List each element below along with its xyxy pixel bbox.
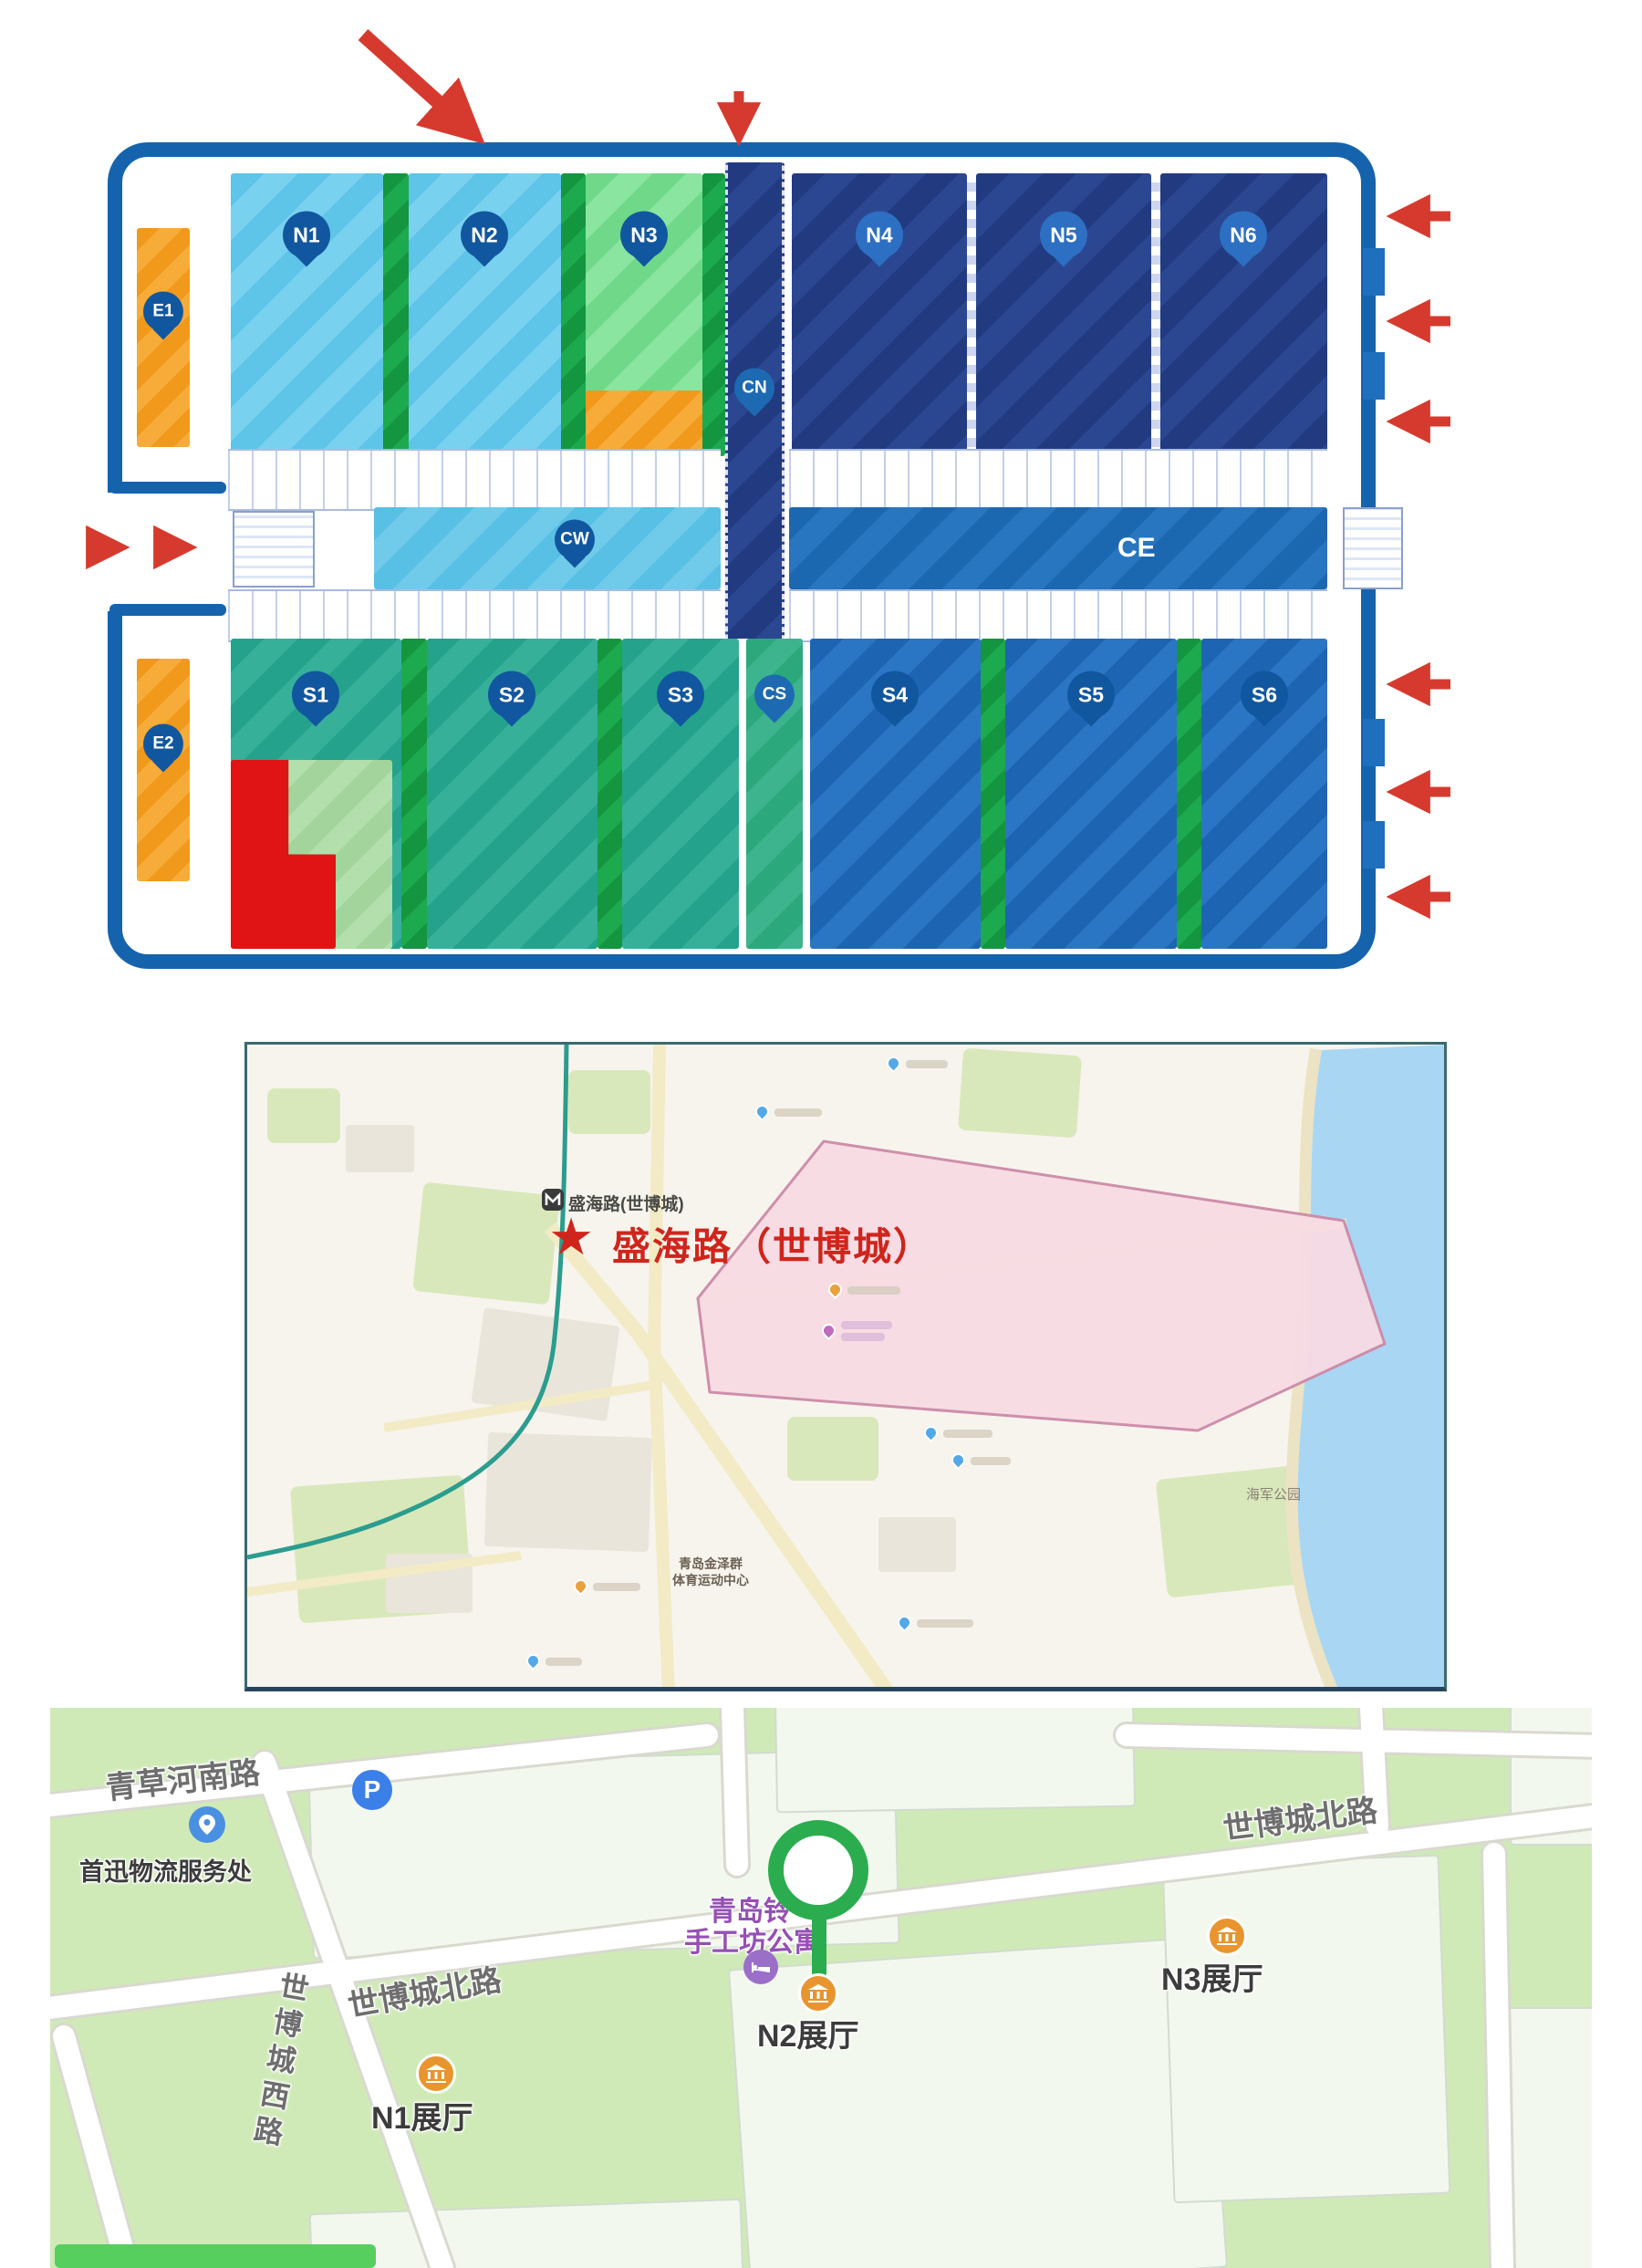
poi-logistics-label: 首迅物流服务处 <box>79 1852 252 1888</box>
road-stub <box>733 1708 737 1865</box>
hall-pin-s5: S5 <box>1067 671 1115 738</box>
illegible-label <box>841 1321 892 1329</box>
hall-pin-s1-label: S1 <box>292 671 339 719</box>
star-icon: ★ <box>548 1207 594 1267</box>
hall-pin-e1: E1 <box>143 292 183 351</box>
booth-corridor <box>789 589 1327 642</box>
hall-pin-e2: E2 <box>143 724 183 784</box>
road <box>384 1384 660 1428</box>
hall-pin-n5: N5 <box>1040 212 1087 278</box>
corridor-pin-cn: CN <box>734 369 774 428</box>
illegible-label <box>906 1060 948 1068</box>
entrance-wall <box>109 482 226 494</box>
illegible-label <box>546 1658 582 1666</box>
road-topright <box>1127 1735 1592 1746</box>
hall-pin-e2-label: E2 <box>143 724 183 765</box>
illegible-label <box>943 1430 992 1438</box>
lodging-icon[interactable] <box>743 1950 778 1984</box>
divider <box>1177 639 1201 949</box>
corridor-pin-cw: CW <box>555 520 595 579</box>
illegible-label <box>593 1583 640 1591</box>
corridor-pin-cw-label: CW <box>555 520 595 560</box>
composite-venue-guide: N1 N2 N3 N4 N5 N6 CN CW CE CS S1 S2 S3 S… <box>0 0 1642 2268</box>
hall-pin-n2: N2 <box>461 212 508 278</box>
hall-pin-n5-label: N5 <box>1040 212 1087 259</box>
hall-pin-n1-label: N1 <box>283 212 330 259</box>
road-right-v <box>1494 1854 1502 2268</box>
divider <box>981 639 1005 949</box>
hall-pin-n3: N3 <box>620 212 668 278</box>
hall-pin-n1: N1 <box>283 212 330 278</box>
hall-n1-label: N1展厅 <box>371 2093 473 2138</box>
hall-pin-e1-label: E1 <box>143 292 183 332</box>
hall-pin-s4-label: S4 <box>871 671 919 719</box>
sports-center-line2: 体育运动中心 <box>672 1573 749 1587</box>
metro-line <box>247 1045 566 1557</box>
sports-center-label: 青岛金泽群 体育运动中心 <box>656 1555 765 1588</box>
hall-pin-n3-label: N3 <box>620 212 668 259</box>
destination-marker-icon[interactable] <box>768 1820 868 1920</box>
booth-corridor <box>228 449 721 511</box>
entrance-wall <box>109 604 226 616</box>
illegible-label <box>841 1333 885 1341</box>
divider <box>702 173 725 456</box>
hall-pin-s3: S3 <box>657 671 704 738</box>
corridor-pin-cn-label: CN <box>734 369 774 409</box>
hall-pin-s1: S1 <box>292 671 339 738</box>
corridor-pin-cs: CS <box>754 675 795 734</box>
parking-letter: P <box>364 1775 381 1805</box>
location-pin-icon[interactable] <box>189 1806 225 1843</box>
museum-icon-n1[interactable] <box>416 2054 456 2094</box>
corridor-ce-label: CE <box>1117 533 1156 564</box>
dock-tab <box>1363 248 1385 296</box>
divider <box>401 639 427 949</box>
red-arrow-main-icon <box>363 35 471 131</box>
expo-site-polygon <box>698 1141 1385 1431</box>
booth-corridor <box>789 449 1327 511</box>
metro-location-map: 盛海路(世博城) ★ 盛海路（世博城） 青岛金泽群 体育运动中心 海军公园 <box>244 1042 1447 1691</box>
metro-map-graphics <box>247 1045 1447 1691</box>
corridor-pin-cs-label: CS <box>754 675 795 715</box>
hall-pin-s2-label: S2 <box>488 671 535 719</box>
illegible-label <box>774 1108 822 1117</box>
hall-pin-s2: S2 <box>488 671 535 738</box>
dock-tab <box>1363 352 1385 400</box>
green-strip <box>55 2244 376 2268</box>
hall-pin-s6: S6 <box>1241 671 1288 738</box>
divider <box>1151 173 1160 456</box>
illegible-label <box>971 1457 1011 1465</box>
booth-corridor <box>228 589 721 642</box>
sports-center-line1: 青岛金泽群 <box>679 1556 743 1571</box>
illegible-label <box>847 1286 900 1295</box>
station-title: 盛海路（世博城） <box>612 1216 933 1272</box>
east-gate-structure <box>1343 507 1403 589</box>
divider <box>383 173 409 456</box>
hall-pin-s6-label: S6 <box>1241 671 1288 719</box>
hall-n3-orange-zone <box>586 390 702 456</box>
road-left <box>64 2036 128 2268</box>
road <box>247 1555 521 1592</box>
hall-pin-n4-label: N4 <box>856 212 903 259</box>
hall-pin-n4: N4 <box>856 212 903 278</box>
museum-icon-n3[interactable] <box>1207 1916 1247 1956</box>
divider <box>967 173 976 456</box>
dock-tab <box>1363 821 1385 869</box>
west-entrance-gap <box>97 493 130 611</box>
street-map: 青草河南路 世博城北路 世博城北路 世博城西路 首迅物流服务处 P 青岛铃 手工… <box>50 1708 1592 2268</box>
parking-icon[interactable]: P <box>352 1770 392 1810</box>
illegible-label <box>917 1619 973 1628</box>
hall-pin-n6: N6 <box>1220 212 1267 278</box>
divider <box>598 639 622 949</box>
hall-pin-s3-label: S3 <box>657 671 704 719</box>
hall-pin-s5-label: S5 <box>1067 671 1115 719</box>
park-label: 海军公园 <box>1246 1484 1301 1503</box>
hall-n2-label: N2展厅 <box>757 2011 858 2055</box>
corridor-ce[interactable] <box>789 507 1327 589</box>
divider <box>561 173 586 456</box>
expo-floor-plan: N1 N2 N3 N4 N5 N6 CN CW CE CS S1 S2 S3 S… <box>0 0 1642 1013</box>
hall-pin-s4: S4 <box>871 671 919 738</box>
hall-n3-label: N3展厅 <box>1161 1954 1263 1999</box>
hall-pin-n2-label: N2 <box>461 212 508 259</box>
dock-tab <box>1363 719 1385 766</box>
hall-pin-n6-label: N6 <box>1220 212 1267 259</box>
corridor-cw[interactable] <box>374 507 721 589</box>
west-gate-structure <box>233 511 315 588</box>
museum-icon-n2[interactable] <box>798 1973 838 2013</box>
